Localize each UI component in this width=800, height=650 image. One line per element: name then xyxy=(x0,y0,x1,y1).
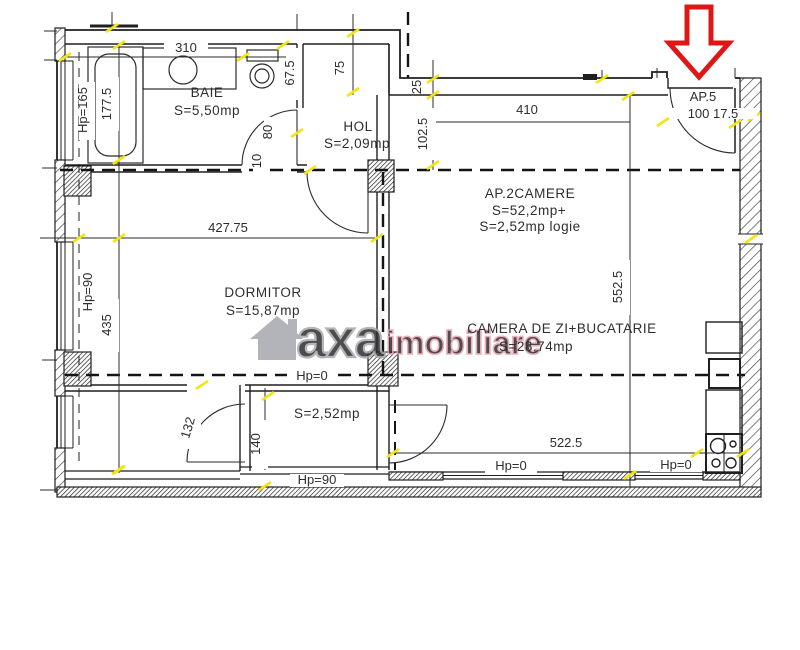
room-area-living: S=28,74mp xyxy=(499,339,573,354)
dim-310: 310 xyxy=(175,40,197,55)
apartment-title: AP.2CAMERE xyxy=(485,186,575,201)
dim-522-5: 522.5 xyxy=(550,435,583,450)
dim-80: 80 xyxy=(260,125,275,139)
room-area-hol: S=2,09mp xyxy=(324,136,390,151)
apartment-area-2: S=2,52mp logie xyxy=(479,219,580,234)
dim-hp0-left: Hp=0 xyxy=(495,458,526,473)
room-label-dormitor: DORMITOR xyxy=(224,285,301,300)
dim-102-5: 102.5 xyxy=(415,118,430,151)
room-area-logie: S=2,52mp xyxy=(294,406,360,421)
dim-hp165: Hp=165 xyxy=(75,87,90,133)
floorplan-image: axa imobiliare 310 177.5 Hp=165 BAIE S=5… xyxy=(0,0,800,650)
dim-140: 140 xyxy=(248,433,263,455)
room-label-baie: BAIE xyxy=(191,85,224,100)
dim-410: 410 xyxy=(516,102,538,117)
dim-435: 435 xyxy=(99,314,114,336)
room-label-hol: HOL xyxy=(343,119,372,134)
bottom-wall xyxy=(57,487,761,497)
dim-75: 75 xyxy=(332,61,347,75)
dim-427-75: 427.75 xyxy=(208,220,248,235)
column xyxy=(368,160,394,192)
room-area-baie: S=5,50mp xyxy=(174,103,240,118)
dim-hp90-logie: Hp=90 xyxy=(298,472,337,487)
apartment-area-1: S=52,2mp+ xyxy=(492,203,566,218)
watermark-brand: axa xyxy=(296,309,385,369)
column xyxy=(64,352,91,386)
dim-10: 10 xyxy=(249,154,264,168)
dim-hp90-west: Hp=90 xyxy=(80,273,95,312)
room-label-living: CAMERA DE ZI+BUCATARIE xyxy=(467,321,656,336)
dim-hp0-right: Hp=0 xyxy=(660,457,691,472)
room-area-dormitor: S=15,87mp xyxy=(226,303,300,318)
dim-25: 25 xyxy=(409,80,424,94)
dim-552-5: 552.5 xyxy=(610,271,625,304)
entrance-label: AP.5 xyxy=(690,89,717,104)
right-wall xyxy=(740,78,761,490)
dim-67-5: 67.5 xyxy=(282,60,297,85)
floor-plan-canvas: axa imobiliare 310 177.5 Hp=165 BAIE S=5… xyxy=(0,0,800,650)
entrance-dims: 100 17.5 xyxy=(688,106,739,121)
dim-177-5: 177.5 xyxy=(99,88,114,121)
dim-hp0-center: Hp=0 xyxy=(296,368,327,383)
